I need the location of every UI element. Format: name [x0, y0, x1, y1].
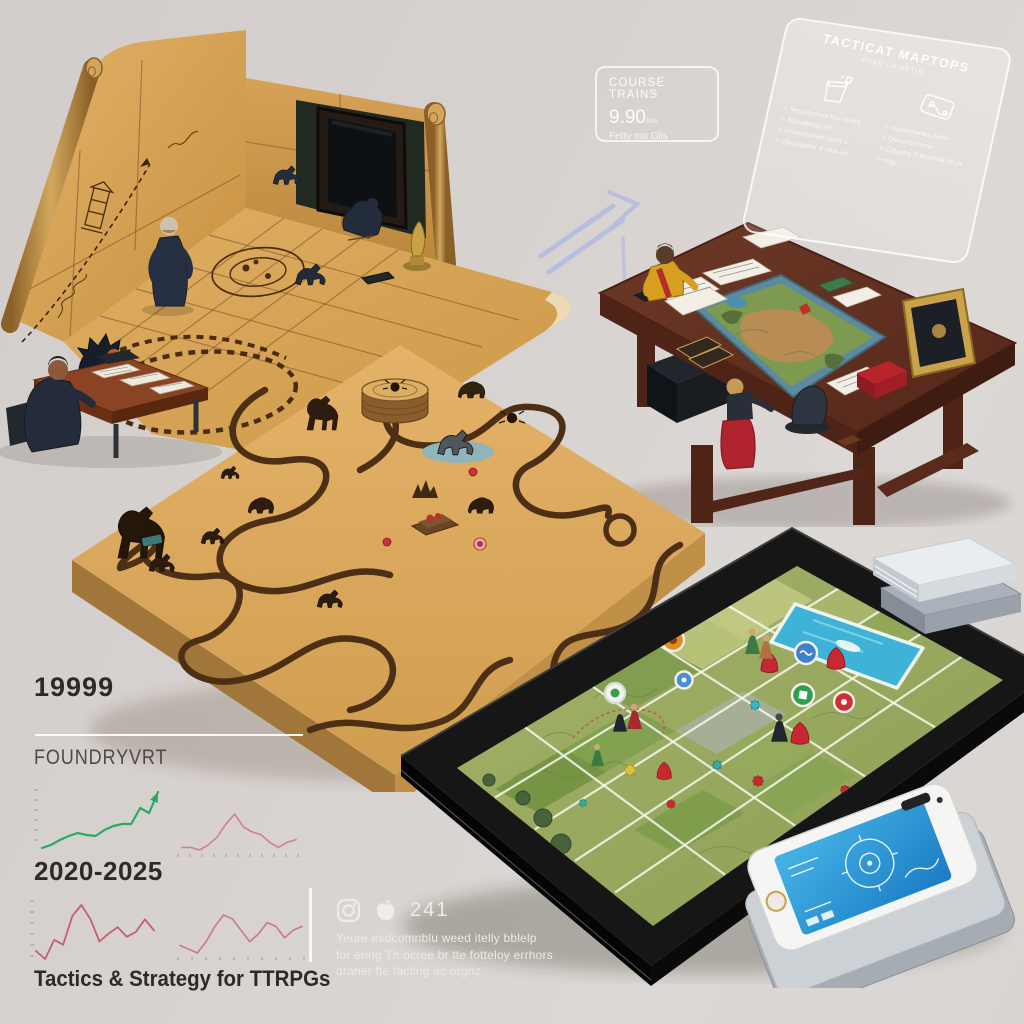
- tactical-maptops-panel: TACTICAT MAPTOPS PAVD LA ASTID Negomstsv…: [740, 16, 1013, 265]
- wooden-spool: [362, 379, 428, 423]
- panel-column-right: Inasmosvtes daver Qstsszbsvseyt Cdbighq …: [875, 83, 987, 182]
- apple-icon: [374, 898, 397, 923]
- caption-line: draher fte facting ac orgriz.: [336, 963, 581, 980]
- social-row: 241: [336, 898, 449, 923]
- vertical-divider: [309, 888, 312, 962]
- caption-line: Yeure esdcomnblu weed itelly bblelp: [336, 930, 581, 947]
- course-price-suffix: /as: [646, 115, 657, 125]
- course-card-subtitle: Fetty mo Glis: [609, 131, 705, 142]
- growth-chart: [28, 780, 168, 858]
- volatile-chart: [22, 893, 164, 969]
- course-price: 9.90: [609, 107, 646, 128]
- brand-name: FOUNDRYVRT: [34, 746, 167, 770]
- caption-line: for ering Th ocree br tte fotteloy errho…: [336, 947, 581, 964]
- poster-title: Tactics & Strategy for TTRPGs: [34, 966, 330, 992]
- framed-portrait: [903, 289, 975, 377]
- course-price-card: COURSE TRAINS 9.90/as Fetty mo Glis: [595, 66, 719, 142]
- course-card-title: COURSE TRAINS: [609, 77, 705, 101]
- instagram-icon: [336, 898, 361, 923]
- trend-chart-b: [166, 903, 312, 963]
- caption: Yeure esdcomnblu weed itelly bblelp for …: [336, 930, 581, 980]
- divider-line: [35, 734, 303, 736]
- tablet-battle-map: [393, 518, 1024, 988]
- panel-column-left: Negomstsva bsv dours Bassabegy se Hbnson…: [774, 64, 886, 163]
- poster-canvas: COURSE TRAINS 9.90/as Fetty mo Glis TACT…: [0, 0, 1024, 1024]
- trend-chart-a: [168, 802, 306, 860]
- period-label: 2020-2025: [34, 856, 163, 887]
- big-number: 19999: [34, 672, 114, 703]
- social-count: 241: [410, 899, 449, 922]
